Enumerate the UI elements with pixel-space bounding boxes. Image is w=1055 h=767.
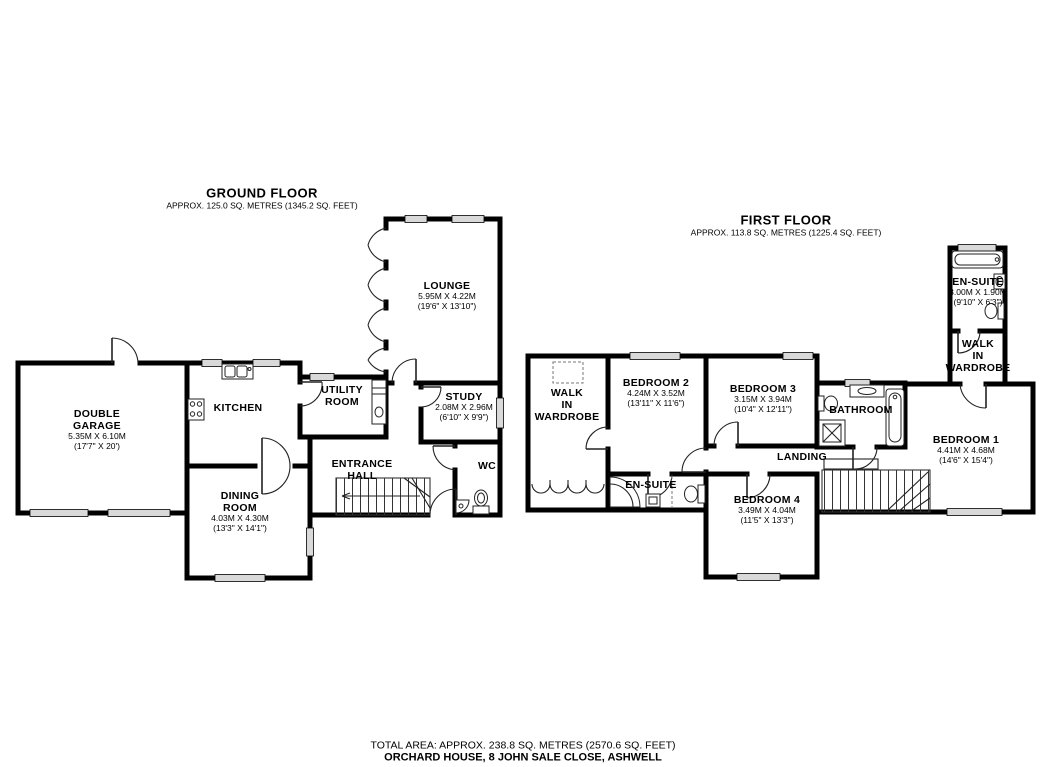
room-label-double-garage: DOUBLE GARAGE 5.35M X 6.10M (17'7" X 20'…	[68, 408, 126, 452]
room-name: WC	[478, 460, 496, 472]
floor-plan-drawing	[0, 0, 1055, 767]
utility-sink-fixture	[372, 380, 386, 424]
room-label-en-suite-master: EN-SUITE 3.00M X 1.90M (9'10" X 6'3")	[949, 276, 1007, 308]
room-label-lounge: LOUNGE 5.95M X 4.22M (19'6" X 13'10")	[418, 280, 476, 312]
room-dimensions-imperial: (9'10" X 6'3")	[949, 298, 1007, 308]
room-label-bedroom-2: BEDROOM 2 4.24M X 3.52M (13'11" X 11'6")	[623, 377, 689, 409]
room-name: EN-SUITE	[625, 479, 676, 491]
ground-floor-stairs	[336, 478, 430, 515]
room-label-wc: WC	[478, 460, 496, 472]
room-label-study: STUDY 2.08M X 2.96M (6'10" X 9'9")	[435, 391, 493, 423]
room-name: DOUBLE GARAGE	[68, 408, 126, 432]
room-name: BATHROOM	[829, 404, 892, 416]
floorplan-page: GROUND FLOOR APPROX. 125.0 SQ. METRES (1…	[0, 0, 1055, 767]
room-dimensions-imperial: (10'4" X 12'11")	[730, 405, 796, 415]
floor-title-text: GROUND FLOOR	[166, 187, 357, 202]
room-name: KITCHEN	[214, 402, 263, 414]
room-label-bathroom: BATHROOM	[829, 404, 892, 416]
room-dimensions-imperial: (11'5" X 13'3")	[734, 516, 800, 526]
room-dimensions-imperial: (13'3" X 14'1")	[211, 524, 269, 534]
address-text: ORCHARD HOUSE, 8 JOHN SALE CLOSE, ASHWEL…	[371, 752, 676, 765]
room-label-entrance-hall: ENTRANCE HALL	[332, 458, 393, 482]
room-dimensions-imperial: (13'11" X 11'6")	[623, 399, 689, 409]
room-dimensions-imperial: (14'6" X 15'4")	[933, 456, 999, 466]
room-name: DINING ROOM	[211, 490, 269, 514]
room-label-dining-room: DINING ROOM 4.03M X 4.30M (13'3" X 14'1"…	[211, 490, 269, 534]
kitchen-sink-fixture	[222, 364, 253, 379]
room-label-walk-in-wardrobe-left: WALK IN WARDROBE	[535, 387, 600, 423]
room-dimensions-imperial: (17'7" X 20')	[68, 442, 126, 452]
wardrobe-hanging-rail	[532, 480, 604, 493]
ensuite-basin-fixture	[646, 494, 660, 507]
stove-fixture	[188, 399, 204, 420]
room-label-walk-in-wardrobe-right: WALK IN WARDROBE	[946, 338, 1011, 374]
room-name: LANDING	[777, 451, 827, 463]
floor-title-text: FIRST FLOOR	[691, 214, 882, 229]
room-dimensions-imperial: (19'6" X 13'10")	[418, 302, 476, 312]
floor-area-text: APPROX. 113.8 SQ. METRES (1225.4 SQ. FEE…	[691, 229, 882, 239]
ensuite-toilet-fixture	[685, 485, 706, 503]
bathroom-bath-fixture	[886, 389, 904, 446]
room-label-landing: LANDING	[777, 451, 827, 463]
room-label-bedroom-1: BEDROOM 1 4.41M X 4.68M (14'6" X 15'4")	[933, 434, 999, 466]
bathroom-shower-fixture	[819, 420, 845, 446]
footer: TOTAL AREA: APPROX. 238.8 SQ. METRES (25…	[371, 740, 676, 765]
wc-toilet-fixture	[473, 490, 489, 514]
ground-floor-doors	[112, 228, 456, 515]
bathroom-sink-fixture	[850, 385, 884, 397]
first-floor-stairs	[822, 459, 930, 512]
room-label-utility-room: UTILITY ROOM	[321, 384, 363, 408]
room-name: ENTRANCE HALL	[332, 458, 393, 482]
total-area-text: TOTAL AREA: APPROX. 238.8 SQ. METRES (25…	[371, 740, 676, 752]
master-ensuite-bath-fixture	[952, 251, 1003, 268]
room-name: WALK IN WARDROBE	[535, 387, 600, 423]
ground-floor-title: GROUND FLOOR APPROX. 125.0 SQ. METRES (1…	[166, 187, 357, 212]
room-dimensions-imperial: (6'10" X 9'9")	[435, 413, 493, 423]
wc-basin-fixture	[456, 500, 469, 513]
first-floor-title: FIRST FLOOR APPROX. 113.8 SQ. METRES (12…	[691, 214, 882, 239]
room-label-kitchen: KITCHEN	[214, 402, 263, 414]
floor-area-text: APPROX. 125.0 SQ. METRES (1345.2 SQ. FEE…	[166, 202, 357, 212]
wardrobe-dashed-unit	[553, 362, 583, 383]
room-label-bedroom-4: BEDROOM 4 3.49M X 4.04M (11'5" X 13'3")	[734, 494, 800, 526]
room-label-bedroom-3: BEDROOM 3 3.15M X 3.94M (10'4" X 12'11")	[730, 383, 796, 415]
room-label-en-suite: EN-SUITE	[625, 479, 676, 491]
room-name: UTILITY ROOM	[321, 384, 363, 408]
room-name: WALK IN WARDROBE	[946, 338, 1011, 374]
